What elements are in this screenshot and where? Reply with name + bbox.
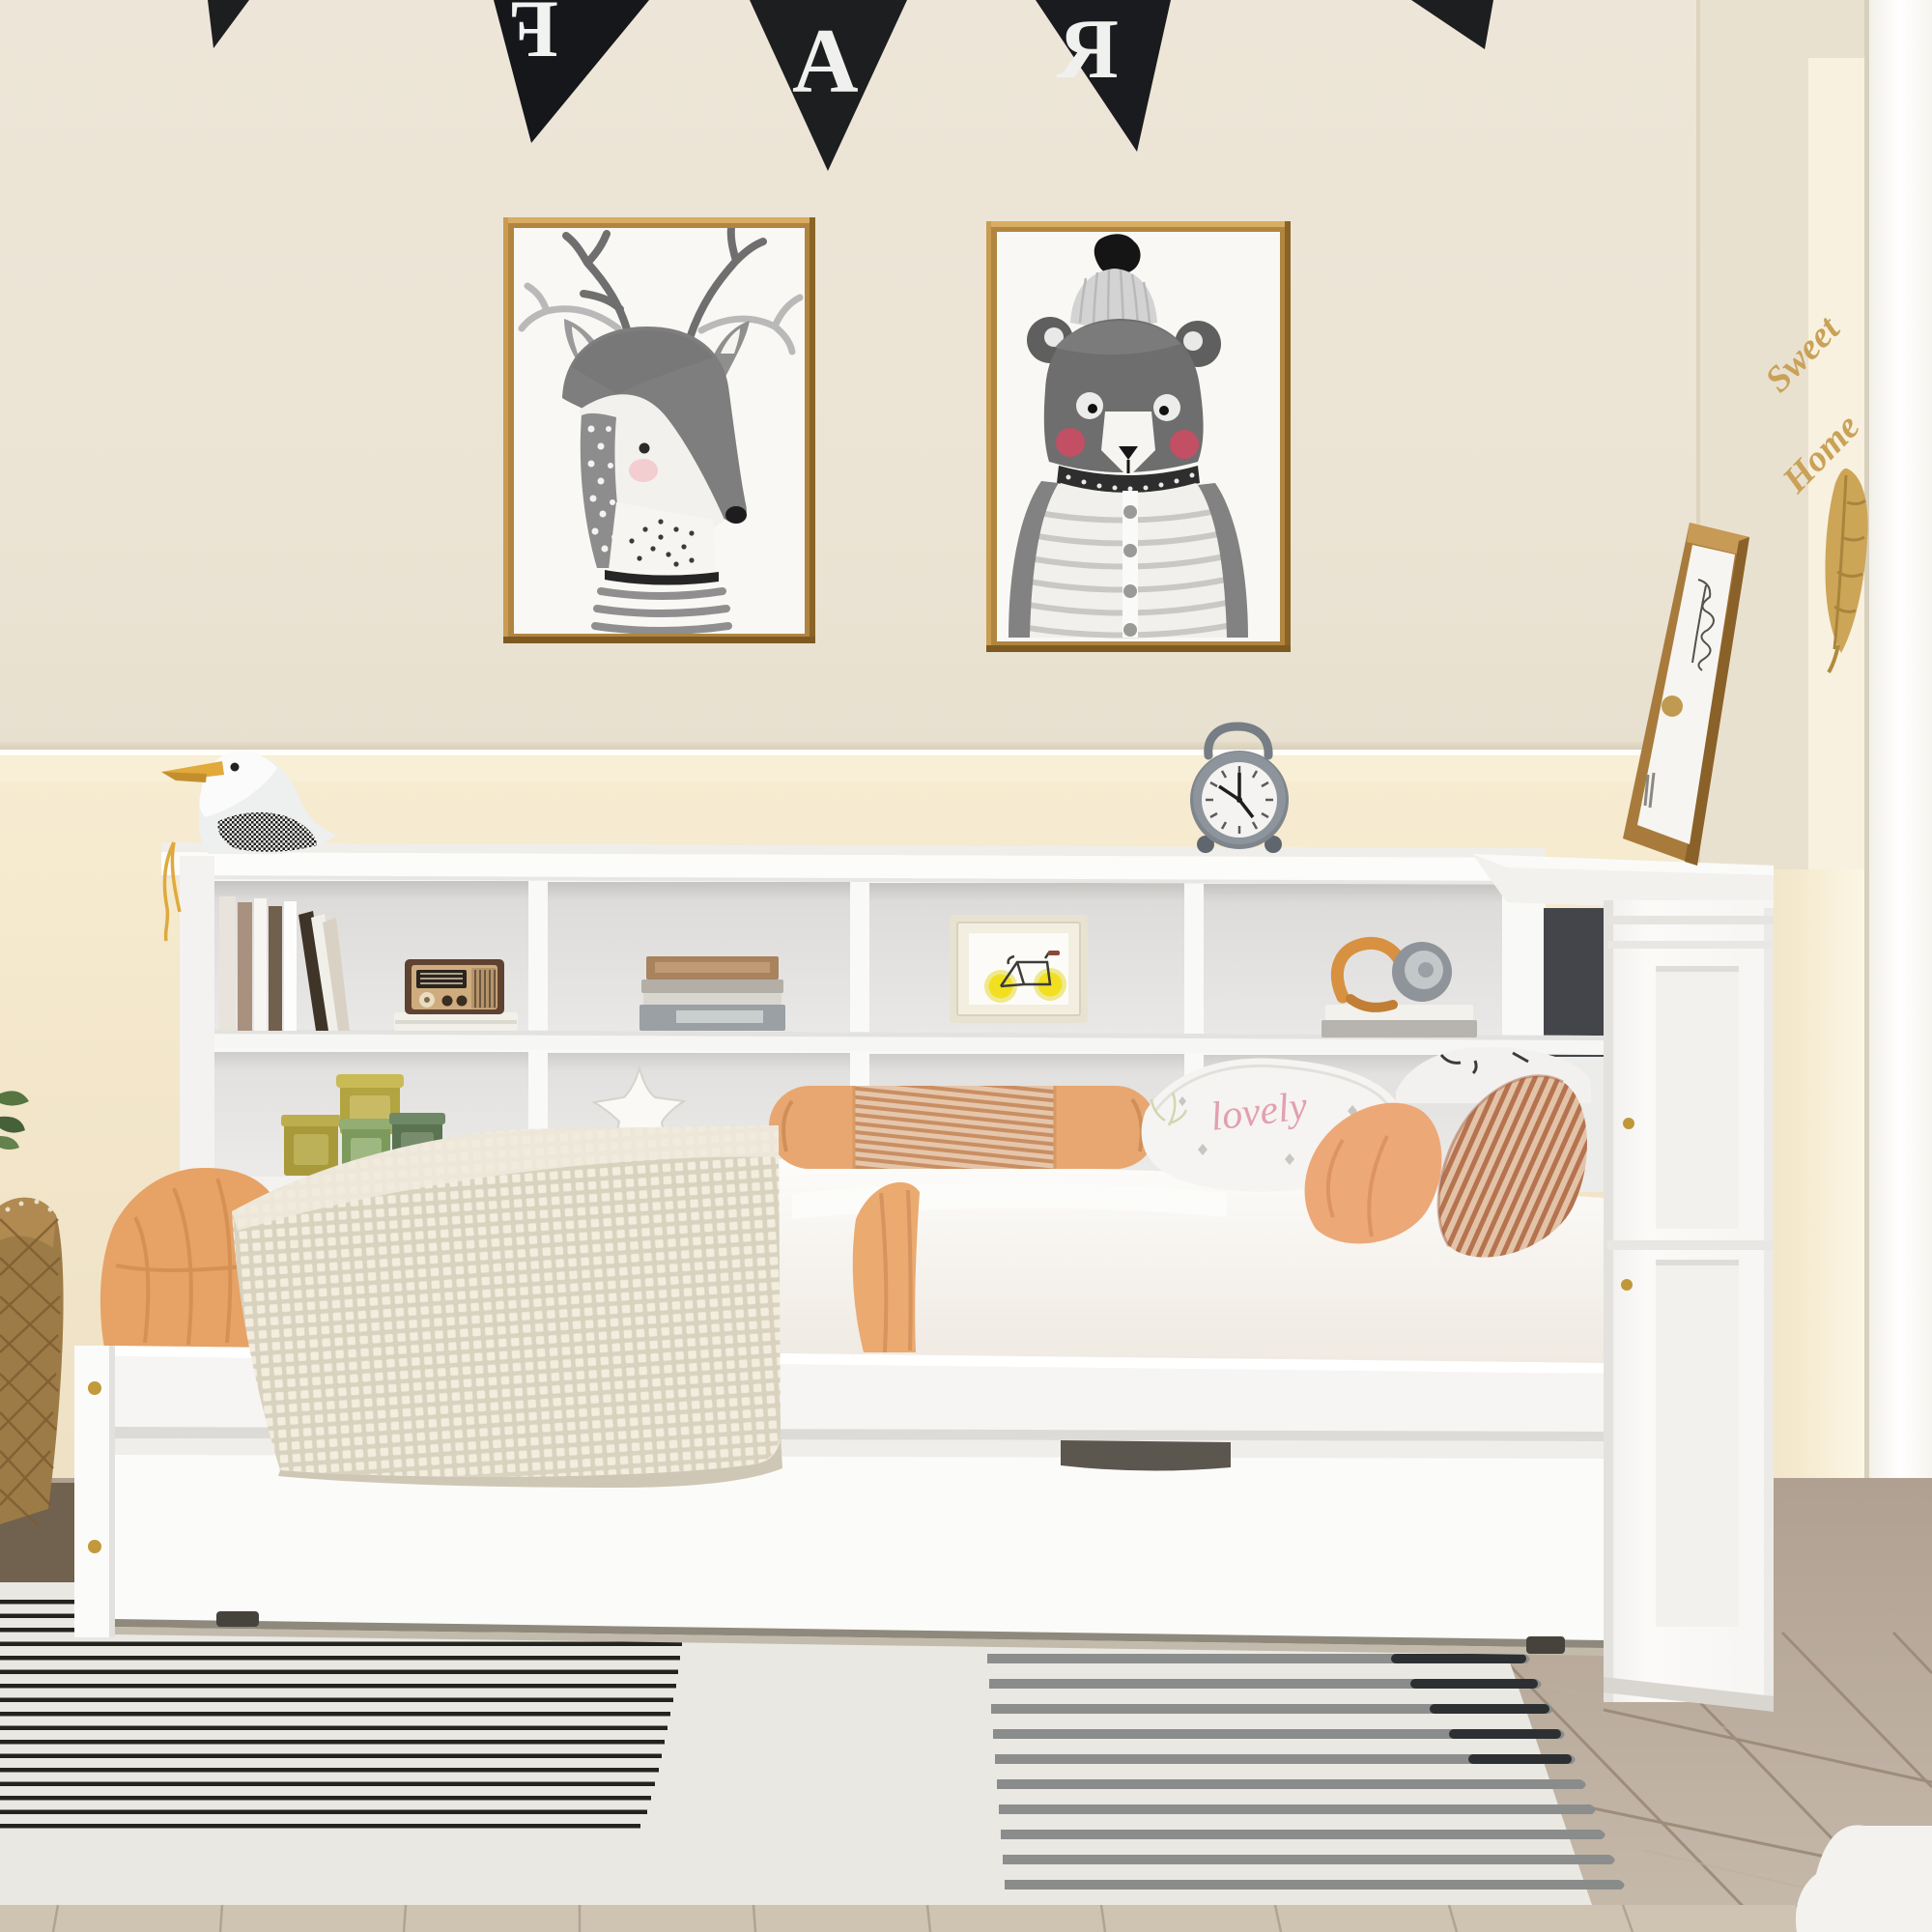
svg-text:A: A (792, 10, 859, 112)
svg-text:F: F (508, 0, 558, 74)
svg-text:R: R (1056, 3, 1119, 97)
